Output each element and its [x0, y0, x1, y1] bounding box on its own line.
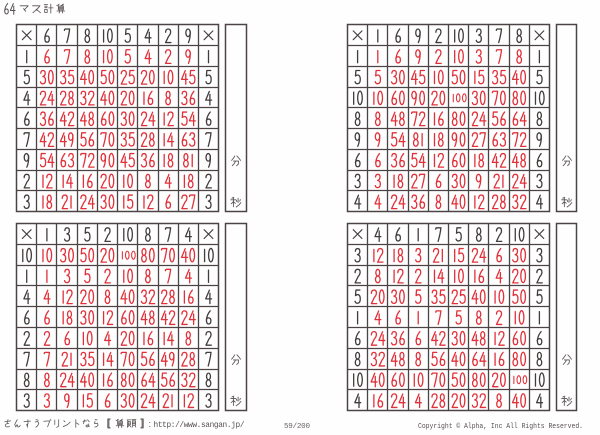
svg-text:59/200: 59/200 [284, 423, 310, 431]
svg-text:http://www.sangan.jp/: http://www.sangan.jp/ [154, 422, 245, 430]
svg-text:Copyright © Alpha, Inc All Rig: Copyright © Alpha, Inc All Rights Reserv… [418, 422, 583, 431]
svg-text::: : [149, 419, 152, 429]
